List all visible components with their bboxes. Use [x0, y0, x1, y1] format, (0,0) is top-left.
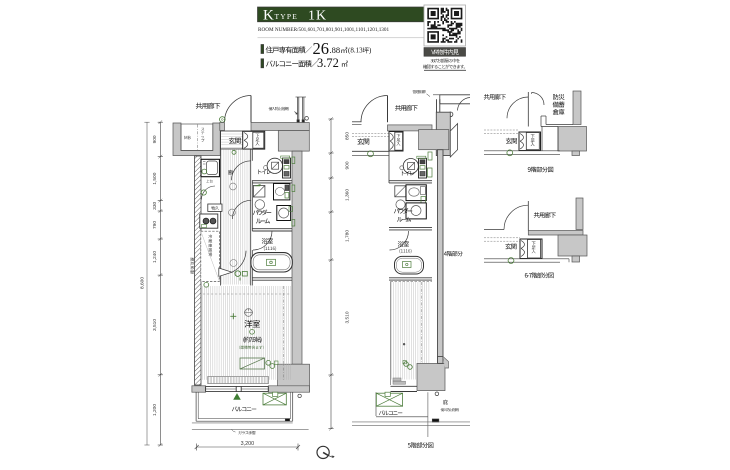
svg-text:1K: 1K: [308, 9, 327, 24]
svg-text:8,600: 8,600: [140, 277, 146, 289]
svg-text:3,200: 3,200: [241, 441, 255, 447]
svg-text:3,510: 3,510: [152, 319, 158, 331]
svg-text:1,780: 1,780: [345, 230, 351, 242]
svg-text:850: 850: [345, 132, 351, 140]
svg-text:900: 900: [345, 161, 351, 169]
svg-text:(8.13: (8.13: [348, 47, 363, 55]
svg-text:1,360: 1,360: [345, 189, 351, 201]
svg-text:900: 900: [152, 135, 158, 143]
svg-text:.88: .88: [330, 45, 341, 55]
svg-text:1,200: 1,200: [152, 404, 158, 416]
svg-text:1,500: 1,500: [152, 172, 158, 184]
svg-text:3,510: 3,510: [345, 311, 351, 323]
svg-text:ROOM NUMBER/501,601,701,801,90: ROOM NUMBER/501,601,701,801,901,1001,110…: [258, 27, 389, 33]
svg-text:3.72: 3.72: [317, 56, 339, 70]
svg-text:330: 330: [152, 201, 158, 209]
svg-text:K: K: [263, 8, 274, 24]
svg-text:1,240: 1,240: [152, 251, 158, 263]
svg-text:790: 790: [152, 221, 158, 229]
svg-text:TYPE: TYPE: [275, 12, 299, 21]
